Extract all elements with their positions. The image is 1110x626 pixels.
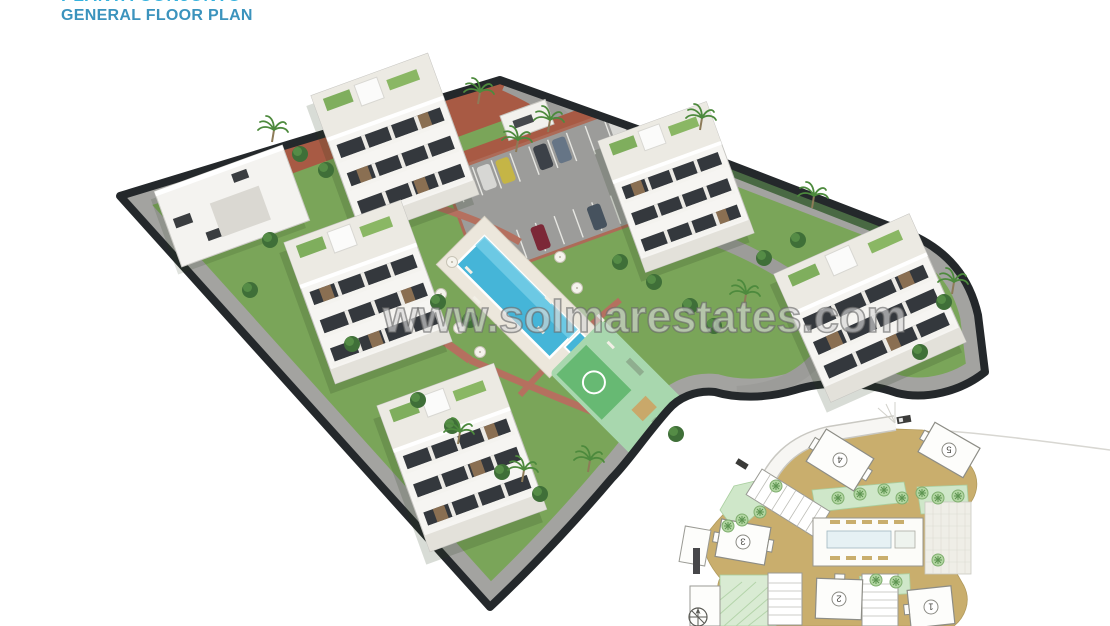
inset-building-4-number: 4: [833, 453, 847, 467]
inset-building-5-number: 5: [942, 443, 956, 457]
watermark: www.solmarestates.com: [383, 291, 907, 343]
svg-text:4: 4: [837, 454, 842, 465]
inset-building-1-number: 1: [924, 600, 938, 614]
svg-text:3: 3: [740, 536, 745, 547]
inset-edge-building: [690, 586, 720, 626]
inset-entrance-marker: [693, 548, 700, 574]
svg-text:5: 5: [946, 444, 951, 455]
inset-building-3-number: 3: [736, 535, 750, 549]
inset-building-2-number: 2: [832, 592, 846, 606]
svg-text:1: 1: [928, 601, 933, 612]
north-compass-icon: [689, 608, 707, 626]
svg-text:2: 2: [836, 593, 841, 604]
page-root: PLANTA CONJUNTO GENERAL FLOOR PLAN: [0, 0, 1110, 626]
inset-amenity-block: [813, 518, 923, 566]
inset-site-plan: 4 5 3 2 1: [679, 402, 1110, 626]
